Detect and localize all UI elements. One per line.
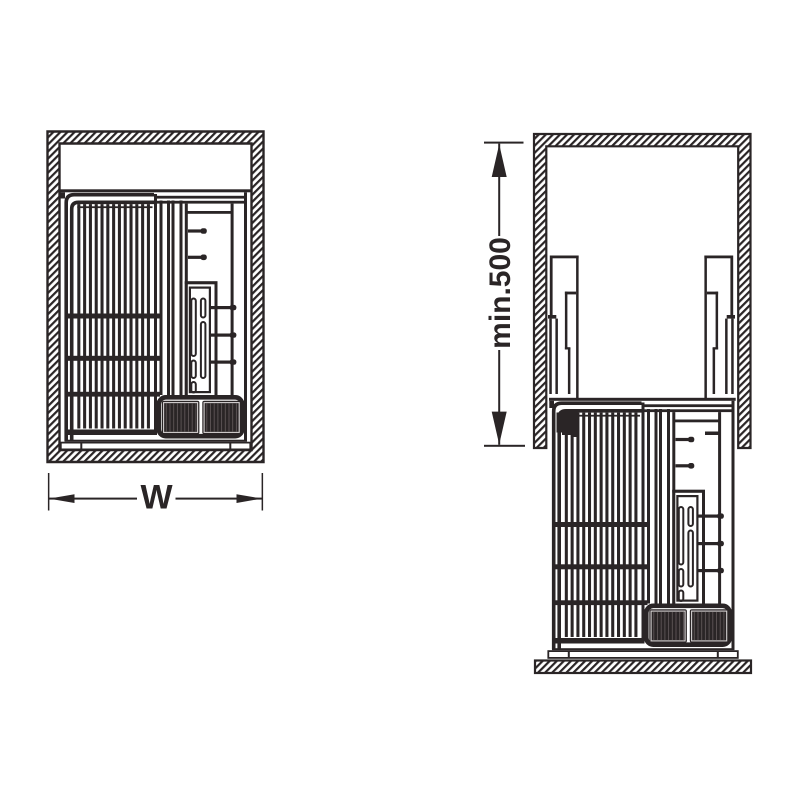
svg-text:min.500: min.500 (484, 237, 517, 349)
svg-text:W: W (140, 479, 173, 517)
